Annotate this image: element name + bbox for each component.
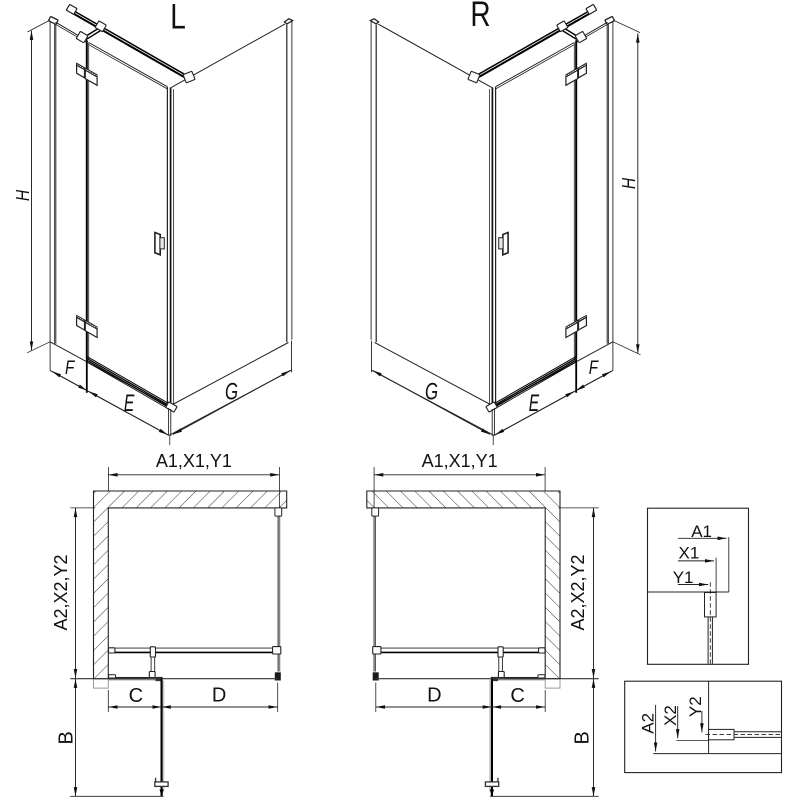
svg-text:B: B — [55, 731, 77, 744]
svg-text:A2,X2,Y2: A2,X2,Y2 — [568, 554, 588, 630]
svg-text:A1,X1,Y1: A1,X1,Y1 — [156, 451, 232, 471]
svg-text:C: C — [510, 685, 524, 707]
svg-text:F: F — [65, 356, 76, 378]
svg-text:E: E — [124, 391, 135, 417]
svg-text:Y1: Y1 — [673, 568, 694, 587]
svg-text:D: D — [212, 685, 226, 707]
svg-text:G: G — [425, 379, 438, 406]
svg-text:X1: X1 — [679, 544, 700, 563]
svg-text:G: G — [225, 379, 238, 406]
svg-text:A2,X2,Y2: A2,X2,Y2 — [51, 554, 71, 630]
svg-text:Y2: Y2 — [686, 696, 705, 717]
svg-text:L: L — [170, 0, 186, 36]
svg-text:E: E — [529, 391, 540, 417]
svg-text:A1,X1,Y1: A1,X1,Y1 — [422, 451, 498, 471]
svg-text:F: F — [589, 356, 600, 378]
svg-text:B: B — [572, 731, 594, 744]
svg-text:D: D — [427, 685, 441, 707]
svg-text:H: H — [619, 177, 639, 189]
svg-text:R: R — [470, 0, 490, 34]
svg-text:A2: A2 — [639, 713, 658, 734]
svg-text:C: C — [129, 685, 143, 707]
svg-text:X2: X2 — [661, 705, 680, 726]
svg-text:H: H — [13, 189, 33, 201]
svg-text:A1: A1 — [691, 522, 712, 541]
